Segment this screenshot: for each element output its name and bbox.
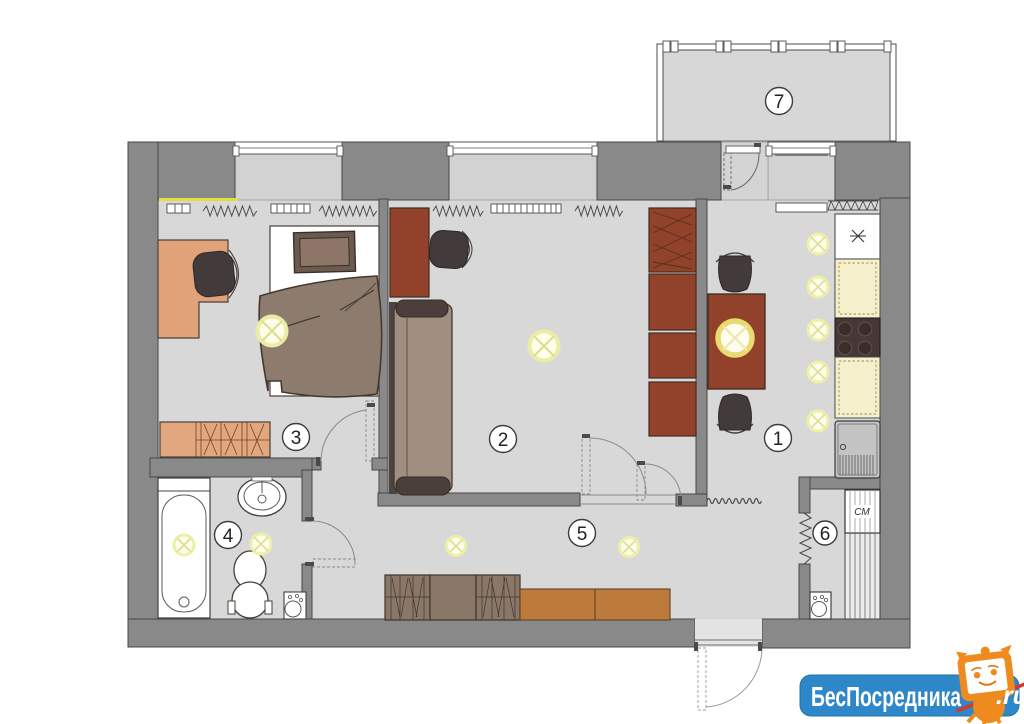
svg-text:7: 7: [774, 92, 785, 113]
svg-text:1: 1: [773, 429, 784, 450]
svg-text:6: 6: [820, 524, 831, 545]
svg-text:СМ: СМ: [854, 507, 870, 518]
svg-text:3: 3: [291, 428, 302, 449]
svg-text:5: 5: [577, 524, 588, 545]
svg-text:4: 4: [223, 526, 234, 547]
svg-text:.ru: .ru: [996, 682, 1024, 710]
svg-text:2: 2: [498, 430, 509, 451]
svg-text:БесПосредника: БесПосредника: [811, 681, 961, 712]
